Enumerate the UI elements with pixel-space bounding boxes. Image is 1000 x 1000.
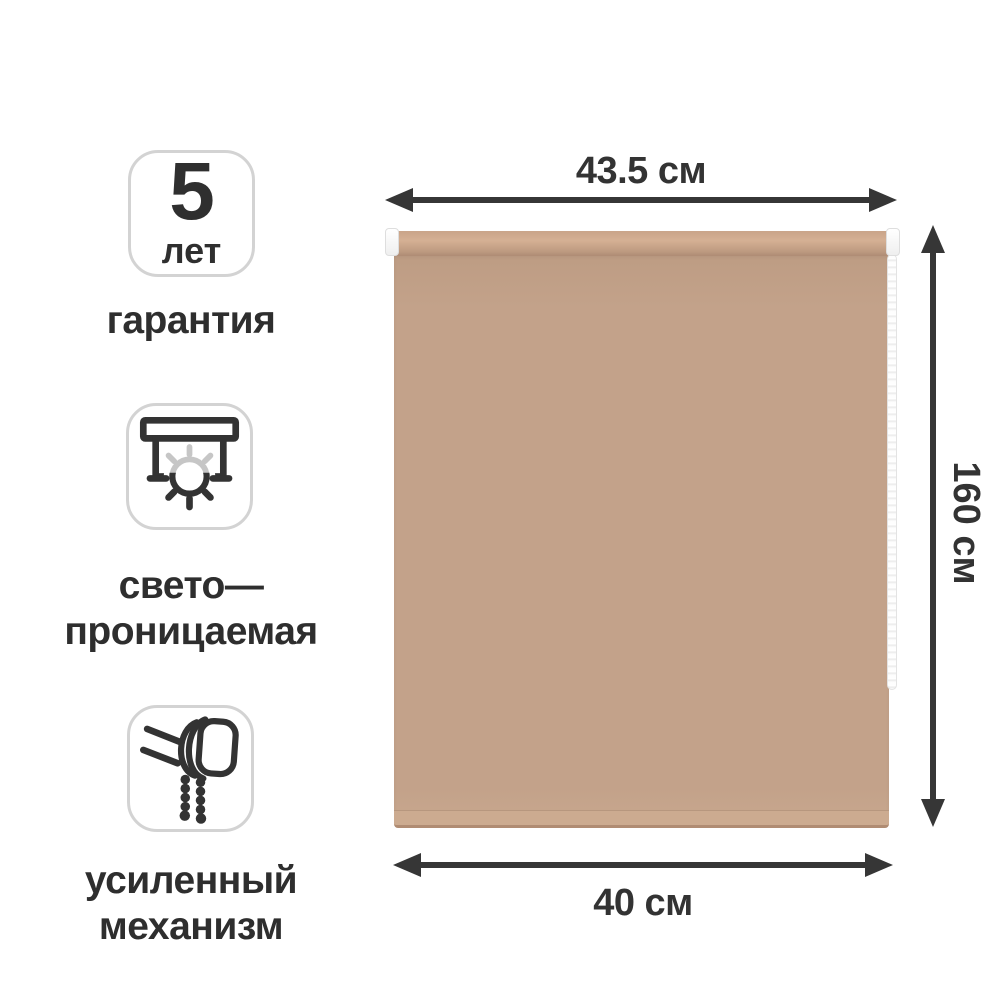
product-dimension-diagram: 5 лет гарантия (0, 0, 1000, 1000)
light-permeable-badge (126, 403, 253, 530)
reinforced-mechanism-icon (127, 708, 254, 829)
light-permeable-icon (126, 406, 253, 527)
arrow-head-right-icon (865, 853, 893, 877)
light-permeable-label-line1: свето— (119, 564, 264, 607)
blind-roller-tube (390, 231, 896, 256)
top-width-label: 43.5 см (541, 150, 741, 193)
arrow-head-down-icon (921, 799, 945, 827)
mechanism-label-line1: усиленный (85, 859, 297, 902)
bead-chain-glyph (180, 775, 207, 824)
blind-right-end-cap (886, 228, 900, 256)
blind-left-end-cap (385, 228, 399, 256)
light-permeable-label: свето— проницаемая (15, 563, 367, 655)
mechanism-badge (127, 705, 254, 832)
warranty-years-number: 5 (169, 155, 214, 229)
light-permeable-label-line2: проницаемая (64, 610, 317, 653)
blind-control-chain (887, 254, 897, 690)
height-arrow (921, 225, 945, 827)
mechanism-label: усиленный механизм (15, 858, 367, 950)
top-width-arrow (385, 188, 897, 212)
blind-bottom-hem (394, 810, 889, 828)
arrow-shaft (401, 862, 885, 868)
warranty-badge: 5 лет (128, 150, 255, 277)
warranty-label: гарантия (15, 298, 367, 344)
blind-fabric (394, 252, 889, 810)
arrow-head-right-icon (869, 188, 897, 212)
mechanism-label-line2: механизм (99, 905, 283, 948)
arrow-shaft (930, 233, 936, 819)
bottom-width-arrow (393, 853, 893, 877)
arrow-shaft (393, 197, 889, 203)
height-label: 160 см (943, 403, 987, 643)
warranty-years-unit: лет (162, 230, 222, 272)
bottom-width-label: 40 см (543, 882, 743, 925)
